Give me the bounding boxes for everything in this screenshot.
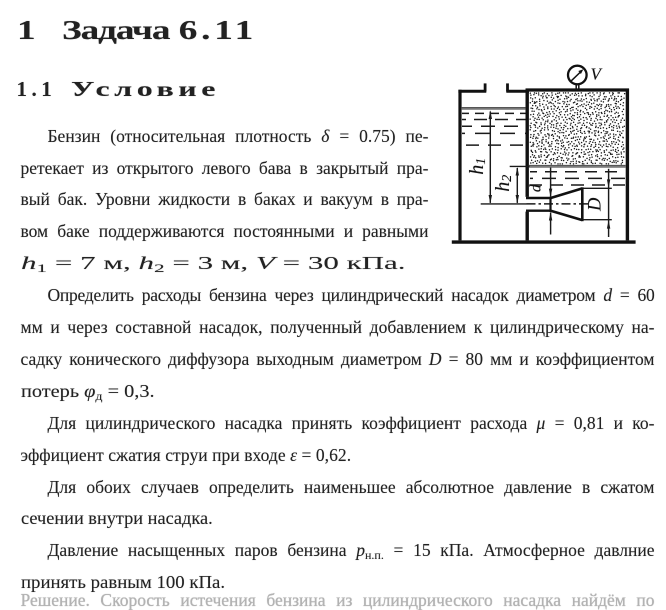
svg-text:h1: h1 <box>466 158 489 175</box>
svg-text:D: D <box>586 197 606 212</box>
svg-text:d: d <box>527 184 544 192</box>
svg-text:V: V <box>591 64 604 83</box>
svg-text:h2: h2 <box>492 175 515 192</box>
